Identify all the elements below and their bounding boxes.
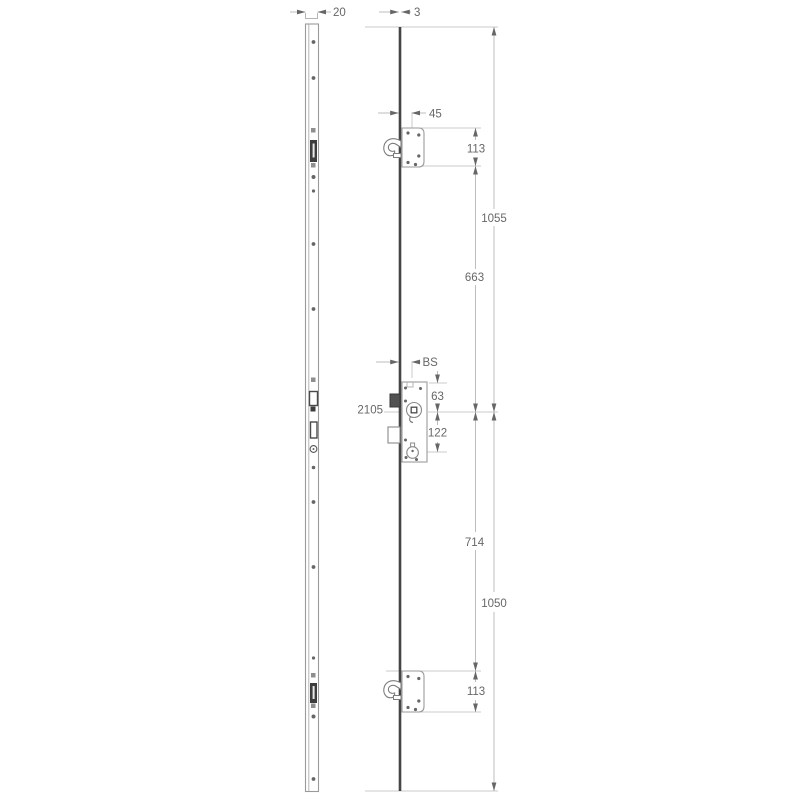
faceplate-channel-section [306,13,318,19]
dim-label-faceplate-thickness: 3 [414,7,420,19]
dim-label-spindle-to-cylinder: 122 [428,428,447,440]
top-lock-case [402,128,424,167]
extension-lines [365,27,498,791]
dim-label-faceplate-width: 20 [333,7,346,19]
dim-label-backset: BS [423,357,439,369]
multipoint-lock-technical-drawing: 20 3 45 113 1055 663 BS 2105 63 122 714 … [0,0,800,800]
dim-label-spindle-to-bottom-case: 714 [465,537,485,549]
dim-label-spindle-to-bottom-overall: 1050 [481,598,507,610]
top-hook-pin [394,154,402,158]
bottom-hook-lock [384,671,424,712]
dim-label-top-case-to-spindle: 663 [465,272,484,284]
latch-bolt [390,394,400,407]
dim-label-case-top-to-spindle: 63 [431,391,444,403]
dim-label-top-case-height: 113 [467,144,485,156]
dim-label-top-to-spindle-overall: 1055 [481,213,507,225]
bottom-lock-case [402,671,424,712]
top-hook-lock [384,128,424,167]
centre-lock-case [388,382,427,462]
deadbolt-opening [311,422,318,438]
faceplate-front-view [306,24,319,792]
dim-label-bottom-case-height: 113 [467,686,485,698]
latch-opening [310,392,318,406]
dim-label-total-length: 2105 [357,405,383,417]
deadbolt [388,427,400,443]
euro-cylinder-hole [407,447,419,459]
bottom-hook-pin [394,696,402,700]
dim-label-top-hook-offset: 45 [429,109,442,121]
drawing-canvas: 20 3 45 113 1055 663 BS 2105 63 122 714 … [0,0,800,800]
dimension-labels: 20 3 45 113 1055 663 BS 2105 63 122 714 … [333,7,507,698]
spindle-follower [407,403,422,418]
